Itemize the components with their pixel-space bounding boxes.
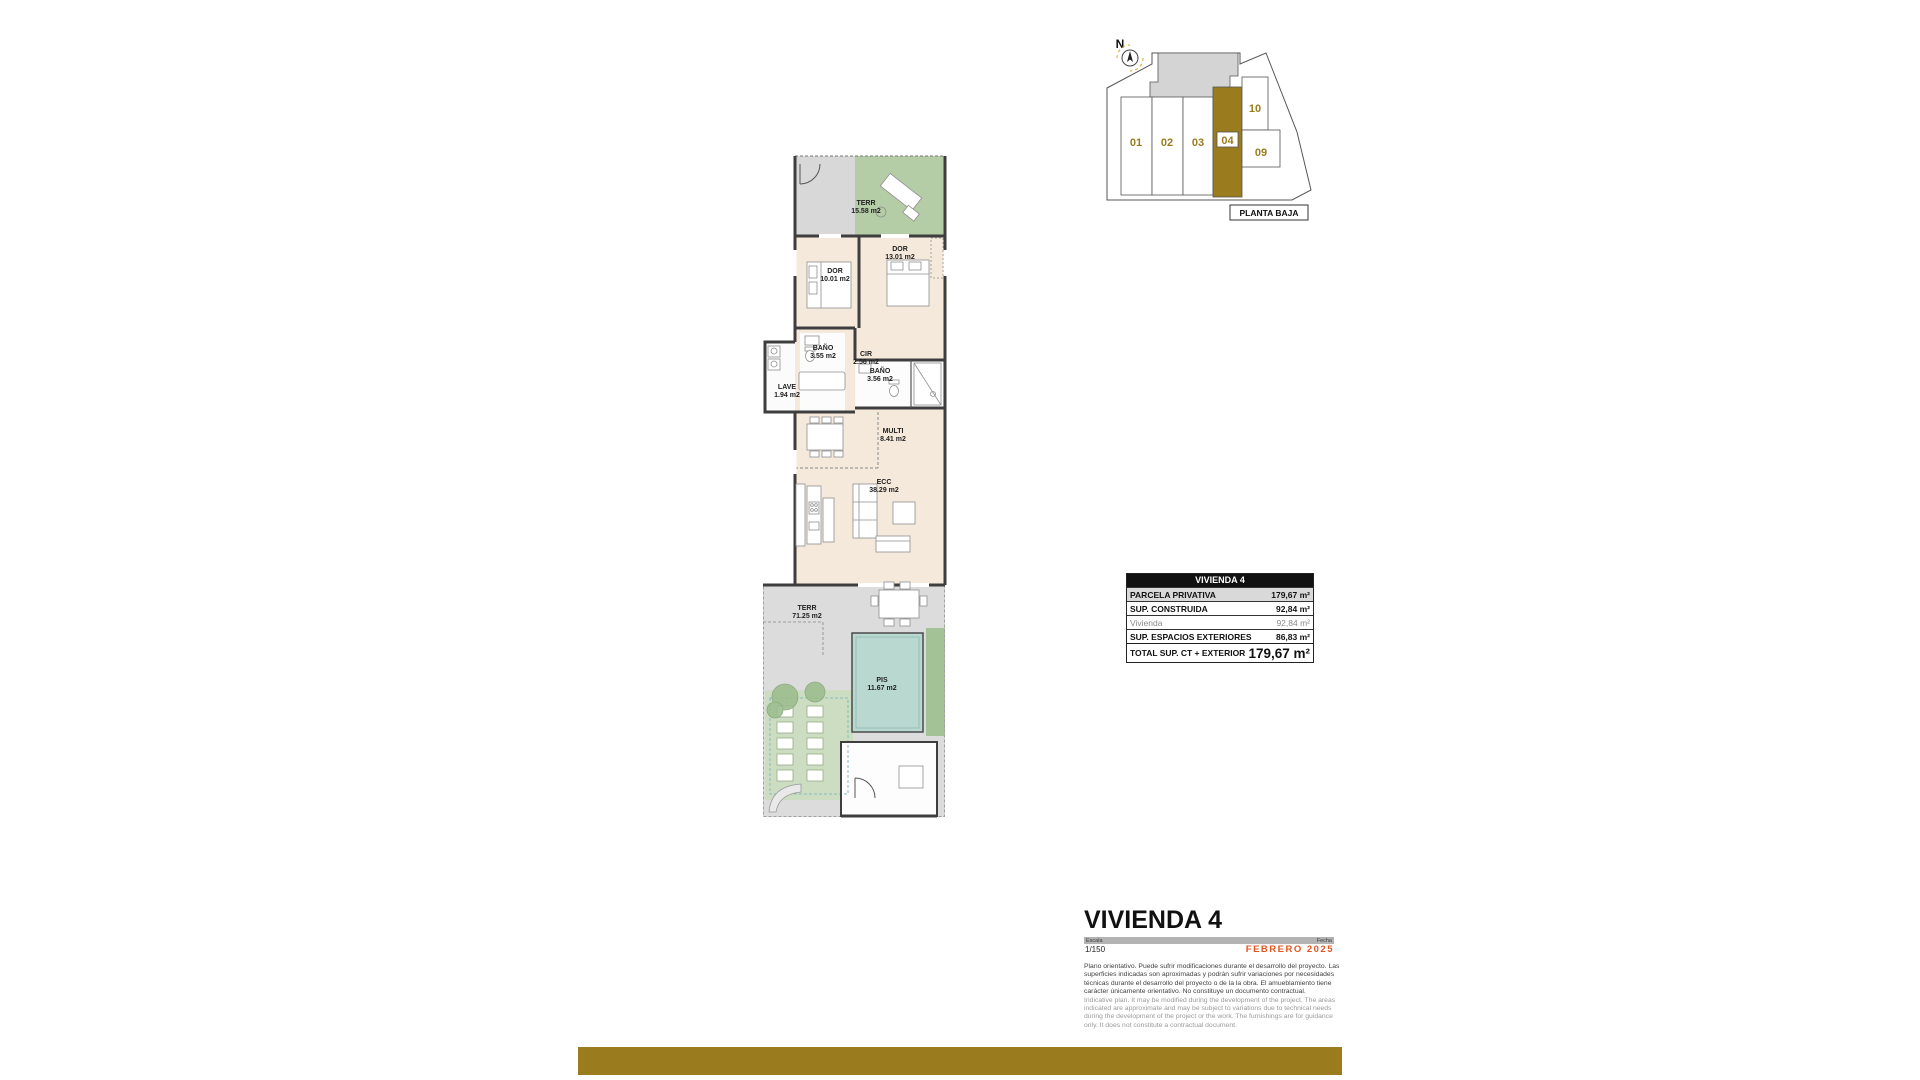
disclaimer: Plano orientativo. Puede sufrir modifica… [1084, 963, 1347, 1030]
room-label-terr-top: TERR15.58 m2 [851, 200, 881, 216]
scale-date-bar: Escala Fecha [1084, 937, 1334, 944]
unit-09-label: 09 [1255, 147, 1267, 159]
table-row: SUP. ESPACIOS EXTERIORES 86,83 m² [1127, 629, 1313, 643]
north-label: N [1116, 37, 1125, 51]
disclaimer-spanish: Plano orientativo. Puede sufrir modifica… [1084, 963, 1347, 997]
bed-dor2 [887, 260, 929, 306]
room-label-bano-356: BAÑO3.56 m2 [867, 368, 893, 384]
room-label-ecc: ECC38.29 m2 [869, 479, 899, 495]
unit-01-label: 01 [1130, 137, 1142, 149]
table-title: VIVIENDA 4 [1127, 574, 1313, 587]
scale-label: Escala [1086, 938, 1103, 944]
table-row: SUP. CONSTRUIDA 92,84 m² [1127, 601, 1313, 615]
footer-accent-bar [578, 1047, 1342, 1075]
planta-baja-label: PLANTA BAJA [1239, 208, 1298, 218]
dining-table [807, 417, 843, 457]
unit-10-label: 10 [1249, 103, 1261, 115]
room-label-bano-355: BAÑO3.55 m2 [810, 345, 836, 361]
armchair [893, 502, 915, 524]
table-row-total: TOTAL SUP. CT + EXTERIOR 179,67 m² [1127, 643, 1313, 662]
date-value: FEBRERO 2025 [1084, 944, 1334, 955]
unit-04-label: 04 [1221, 135, 1234, 147]
table-row: Vivienda 92,84 m² [1127, 615, 1313, 629]
table-row: PARCELA PRIVATIVA 179,67 m² [1127, 587, 1313, 601]
disclaimer-english: Indicative plan. It may be modified duri… [1084, 997, 1347, 1031]
sofa-small [876, 536, 910, 552]
site-plan: 01 02 03 09 10 04 N PLANTA BAJA [1090, 20, 1370, 240]
room-label-pis: PIS11.67 m2 [867, 677, 896, 693]
page-title: VIVIENDA 4 [1084, 906, 1222, 935]
room-label-cir: CIR2.56 m2 [853, 351, 879, 367]
storage-box [899, 766, 923, 788]
unit-03-label: 03 [1192, 137, 1204, 149]
north-compass-icon: N [1116, 37, 1143, 71]
date-label: Fecha [1317, 938, 1332, 944]
plan-sheet: TERR15.58 m2 DOR13.01 m2 DOR10.01 m2 BAÑ… [0, 0, 1920, 1080]
floor-plan-drawing [763, 150, 948, 820]
room-label-lave: LAVE1.94 m2 [774, 384, 800, 400]
room-label-dor-10: DOR10.01 m2 [820, 268, 850, 284]
area-summary-table: VIVIENDA 4 PARCELA PRIVATIVA 179,67 m² S… [1126, 573, 1314, 663]
hedge [926, 628, 945, 736]
room-label-dor-13: DOR13.01 m2 [885, 246, 915, 262]
room-label-terr-bottom: TERR71.25 m2 [792, 605, 822, 621]
unit-02-label: 02 [1161, 137, 1173, 149]
room-label-multi: MULTI8.41 m2 [880, 428, 906, 444]
